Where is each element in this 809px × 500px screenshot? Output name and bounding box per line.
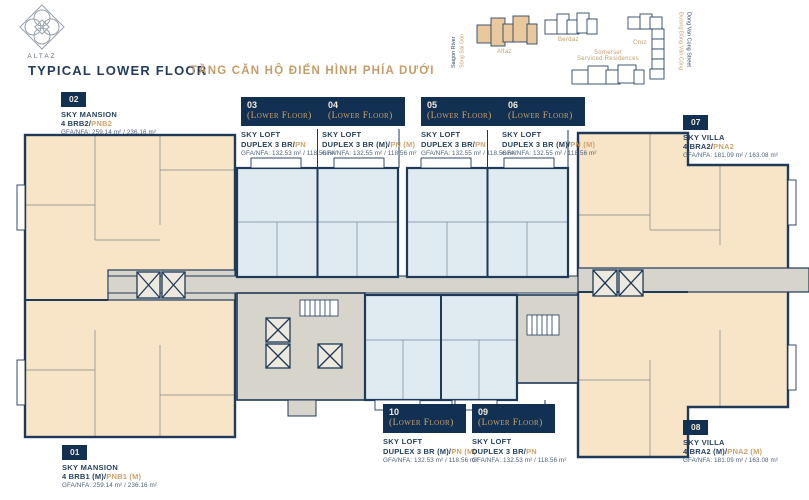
unit-number-badge: 07 xyxy=(683,115,708,130)
unit-number-badge: 05 (Lower Floor) xyxy=(421,97,504,126)
unit-number-badge: 02 xyxy=(61,92,86,107)
unit-number-badge: 08 xyxy=(683,420,708,435)
site-map-serviced-shape xyxy=(572,65,644,84)
unit-label-01: 01 SKY MANSION 4 BRB1 (M)/PNB1 (M) GFA/N… xyxy=(62,441,157,490)
unit-number-badge: 01 xyxy=(62,445,87,460)
site-map-cruz-label: Cruz xyxy=(633,40,647,46)
river-label: Saigon River Sông Sài Gòn xyxy=(450,12,467,68)
unit-label-08: 08 SKY VILLA 4 BRA2 (M)/PNA2 (M) GFA/NFA… xyxy=(683,416,778,465)
unit-number-badge: 04 (Lower Floor) xyxy=(322,97,405,126)
floor-plan-page: ALTAZ TYPICAL LOWER FLOOR TẦNG CĂN HỘ ĐI… xyxy=(0,0,809,500)
unit-label-06: 06 (Lower Floor) SKY LOFT DUPLEX 3 BR (M… xyxy=(502,97,597,158)
unit-label-10: 10 (Lower Floor) SKY LOFT DUPLEX 3 BR (M… xyxy=(383,404,478,465)
unit-label-04: 04 (Lower Floor) SKY LOFT DUPLEX 3 BR (M… xyxy=(322,97,417,158)
unit-label-07: 07 SKY VILLA 4 BRA2/PNA2 GFA/NFA: 181.09… xyxy=(683,111,778,160)
altaz-logo-icon xyxy=(18,3,66,51)
street-label: Dong Van Cong Street Đường Đồng Văn Cống xyxy=(676,12,693,80)
unit-label-02: 02 SKY MANSION 4 BRB2/PNB2 GFA/NFA: 259.… xyxy=(61,88,156,137)
unit-number-badge: 03 (Lower Floor) xyxy=(241,97,324,126)
stair-core xyxy=(517,295,578,383)
unit-number-badge: 09 (Lower Floor) xyxy=(472,404,555,433)
core-stub xyxy=(288,400,316,416)
site-map-berdaz-shape xyxy=(545,13,597,34)
site-map-altaz-label: Altaz xyxy=(497,49,512,55)
site-map-berdaz-label: Berdaz xyxy=(558,37,579,43)
unit-label-09: 09 (Lower Floor) SKY LOFT DUPLEX 3 BR/PN… xyxy=(472,404,567,465)
page-title: TYPICAL LOWER FLOOR xyxy=(28,63,207,78)
site-map-serviced-label: Somerset Serviced Residences xyxy=(553,50,663,62)
unit-number-badge: 10 (Lower Floor) xyxy=(383,404,466,433)
brand-name: ALTAZ xyxy=(14,53,70,60)
unit-number-badge: 06 (Lower Floor) xyxy=(502,97,585,126)
page-title-vietnamese: TẦNG CĂN HỘ ĐIỂN HÌNH PHÍA DƯỚI xyxy=(190,65,435,77)
site-map-altaz-shape xyxy=(477,16,537,46)
